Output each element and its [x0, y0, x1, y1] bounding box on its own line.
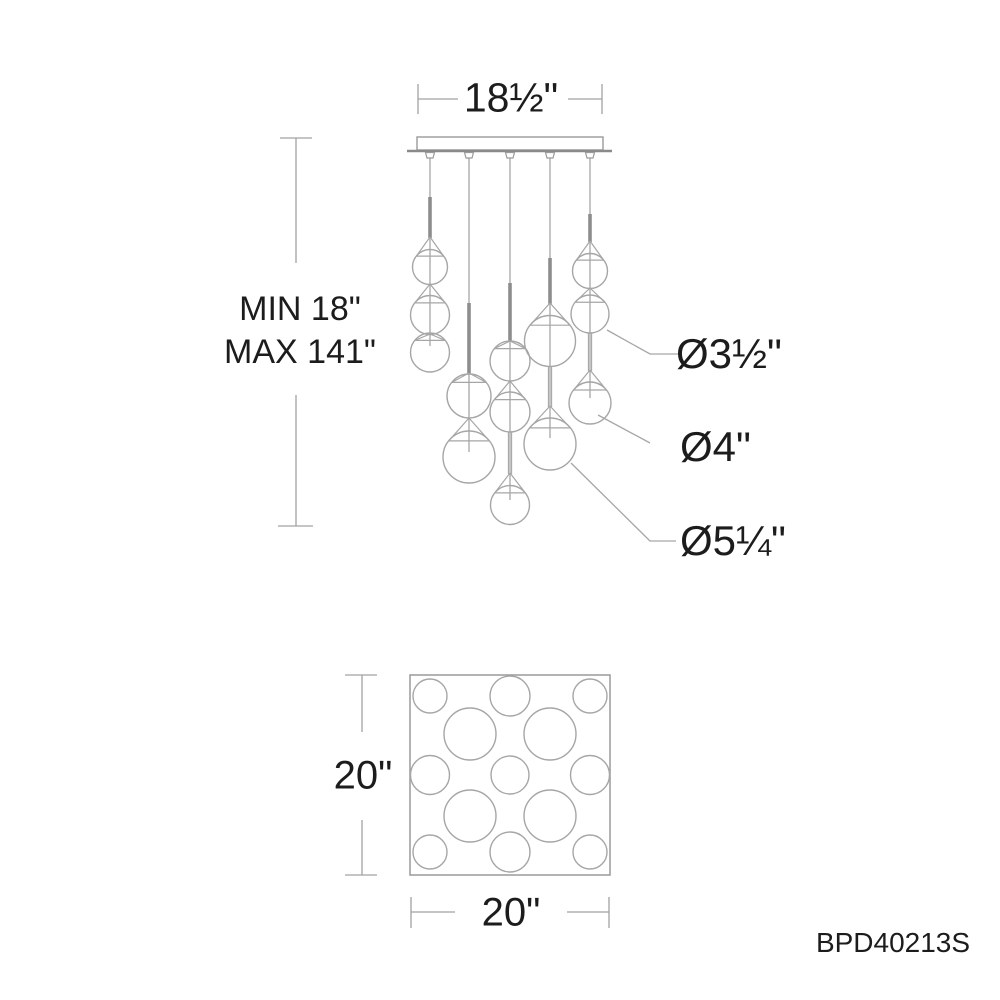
- pendant-spec-sheet: 18½" MIN 18" MAX 141" Ø3½" Ø4" Ø5¼" 20" …: [0, 0, 1000, 1000]
- leader-line: [571, 463, 676, 541]
- globe-cone: [449, 418, 469, 441]
- globe-cone: [510, 473, 525, 493]
- suspension-height-dimension: MIN 18" MAX 141": [224, 288, 376, 374]
- min-height-label: MIN 18": [224, 288, 376, 331]
- canopy-width-dimension: 18½": [464, 75, 558, 122]
- leader-line: [607, 330, 681, 354]
- plan-globe: [524, 790, 576, 842]
- cord-connector: [506, 153, 515, 159]
- small-globe-diameter-label: Ø3½": [676, 330, 782, 378]
- large-globe-diameter-label: Ø5¼": [680, 517, 786, 565]
- line-drawing: [0, 0, 1000, 1000]
- globe-cone: [452, 373, 469, 382]
- plan-globe: [411, 756, 450, 795]
- plan-height-dimension: 20": [334, 754, 393, 799]
- globe-cone: [430, 237, 444, 256]
- globe-cone: [530, 406, 550, 428]
- cord-connector: [546, 153, 555, 159]
- globe-cone: [574, 370, 590, 390]
- leader-line: [598, 415, 650, 443]
- cord-connector: [586, 153, 595, 159]
- medium-globe-diameter-label: Ø4": [680, 423, 751, 471]
- cord-connector: [426, 153, 435, 159]
- plan-globe: [571, 756, 610, 795]
- globe-cone: [495, 473, 510, 493]
- globe-cone: [590, 370, 606, 390]
- plan-globe: [573, 835, 607, 869]
- canopy: [417, 137, 603, 150]
- plan-globe: [413, 835, 447, 869]
- globe-cone: [430, 284, 445, 303]
- plan-globe: [413, 679, 447, 713]
- globe-cone: [469, 418, 489, 441]
- globe-cone: [494, 381, 510, 400]
- plan-globe: [444, 790, 496, 842]
- plan-globe: [491, 756, 529, 794]
- part-number: BPD40213S: [816, 927, 970, 959]
- plan-width-dimension: 20": [482, 891, 541, 936]
- cord-connector: [465, 153, 474, 159]
- plan-globe: [490, 832, 530, 872]
- plan-globe: [573, 679, 607, 713]
- globe-cone: [550, 406, 570, 428]
- globe-cone: [590, 241, 604, 260]
- plan-globe: [524, 708, 576, 760]
- globe-cone: [550, 303, 570, 325]
- globe-cone: [576, 241, 590, 260]
- globe-cone: [416, 237, 430, 256]
- plan-globe: [444, 708, 496, 760]
- globe-cone: [415, 284, 430, 303]
- max-height-label: MAX 141": [224, 331, 376, 374]
- globe-cone: [469, 373, 486, 382]
- globe-cone: [510, 381, 526, 400]
- plan-canopy-outline: [410, 675, 610, 875]
- plan-globe: [490, 676, 530, 716]
- globe-cone: [530, 303, 550, 325]
